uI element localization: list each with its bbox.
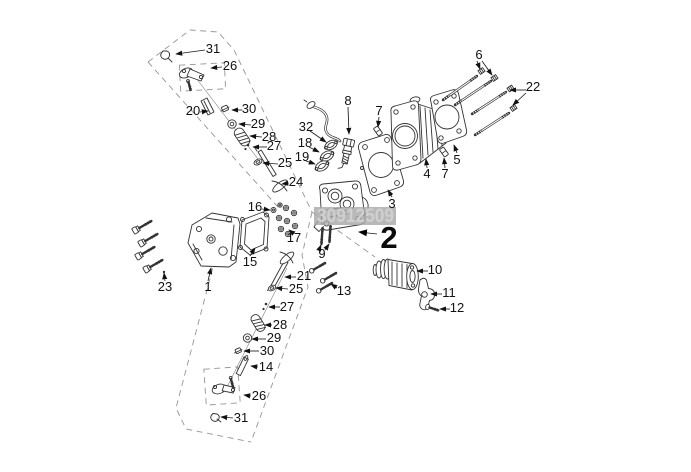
leader-26-bottom [244, 395, 251, 396]
valve-train-axis-top [196, 78, 258, 159]
callout-8: 8 [344, 93, 351, 108]
callout-16: 16 [248, 199, 262, 214]
callout-19: 19 [295, 149, 309, 164]
callout-1: 1 [204, 279, 211, 294]
clip-top [161, 51, 172, 62]
callout-9: 9 [318, 246, 325, 261]
stud-nut [510, 105, 517, 112]
callout-20: 20 [186, 103, 200, 118]
callout-11: 11 [442, 285, 456, 300]
callout-10: 10 [428, 262, 442, 277]
callout-4: 4 [423, 166, 430, 181]
callout-27-bottom: 27 [280, 299, 294, 314]
cover-nut-16 [271, 203, 282, 213]
dowel-pin-top [373, 126, 382, 136]
callout-5: 5 [453, 152, 460, 167]
callout-27-top: 27 [267, 138, 281, 153]
cover-bolt [143, 257, 164, 273]
spring-seat-clip-top [221, 105, 229, 112]
leader-14 [251, 366, 258, 367]
leader-6a [477, 61, 480, 69]
callout-26-top: 26 [223, 58, 237, 73]
exploded-parts-diagram: 30912509 [0, 0, 691, 472]
leader-28-top [250, 136, 262, 137]
valve-spring-bottom [249, 313, 266, 333]
callout-3: 3 [388, 196, 395, 211]
valve-cover [188, 213, 240, 267]
callout-2-assembly: 2 [380, 220, 397, 255]
leader-8 [348, 107, 349, 134]
stud-nut [478, 68, 485, 75]
leader-16 [262, 209, 270, 210]
callout-7-top: 7 [375, 103, 382, 118]
valve-stem-seal-top [228, 120, 236, 128]
callout-6: 6 [475, 47, 482, 62]
leader-25-bottom [276, 288, 288, 289]
callout-26-bottom: 26 [252, 388, 266, 403]
spark-plug [338, 138, 355, 170]
callout-30-bottom: 30 [260, 343, 274, 358]
callout-30-top: 30 [242, 101, 256, 116]
callout-14: 14 [259, 359, 273, 374]
callout-25-top: 25 [278, 155, 292, 170]
callout-24: 24 [289, 174, 303, 189]
cover-bolt [135, 244, 156, 260]
stud-nut [507, 85, 514, 92]
flange-screw [316, 281, 334, 294]
rocker-arm-assembly-bottom [211, 376, 235, 395]
callout-18: 18 [298, 135, 312, 150]
callout-12: 12 [450, 300, 464, 315]
callout-31-bottom: 31 [234, 410, 248, 425]
callout-22: 22 [526, 79, 540, 94]
leader-31-bottom [221, 417, 233, 418]
spring-retainer-top [253, 158, 263, 167]
callout-23: 23 [158, 279, 172, 294]
cover-bolt [138, 231, 159, 247]
rocker-arm-assembly-top [178, 66, 204, 90]
head-stud [329, 226, 330, 242]
valve-stem-seal-bottom [243, 334, 251, 342]
leader-26-top [211, 67, 222, 68]
cover-bolt [132, 218, 153, 234]
callout-13: 13 [337, 283, 351, 298]
leader-31-top [176, 50, 205, 54]
dowel-pin-bottom [439, 147, 448, 157]
spring-seat-clip-bottom [235, 348, 243, 354]
clip-bottom [211, 414, 221, 423]
cover-gasket [239, 212, 270, 255]
callout-17: 17 [287, 230, 301, 245]
leader-6b [482, 61, 492, 75]
leader-29-top [239, 124, 251, 125]
leader-22b [513, 93, 526, 105]
parts-diagram-page: 30912509 [0, 0, 691, 472]
callout-7-bottom: 7 [441, 166, 448, 181]
bolt-dot [163, 271, 165, 273]
leader-7-top [378, 117, 379, 127]
callout-15: 15 [243, 254, 257, 269]
valve-guide-pin [201, 98, 214, 115]
callout-25-bottom: 25 [289, 281, 303, 296]
leader-2-assembly [359, 232, 377, 234]
retainer-bolt [425, 304, 439, 313]
camshaft [373, 259, 418, 290]
head-stud [321, 228, 322, 244]
callout-32: 32 [299, 119, 313, 134]
callout-31-top: 31 [206, 41, 220, 56]
flange-screw [320, 271, 338, 284]
